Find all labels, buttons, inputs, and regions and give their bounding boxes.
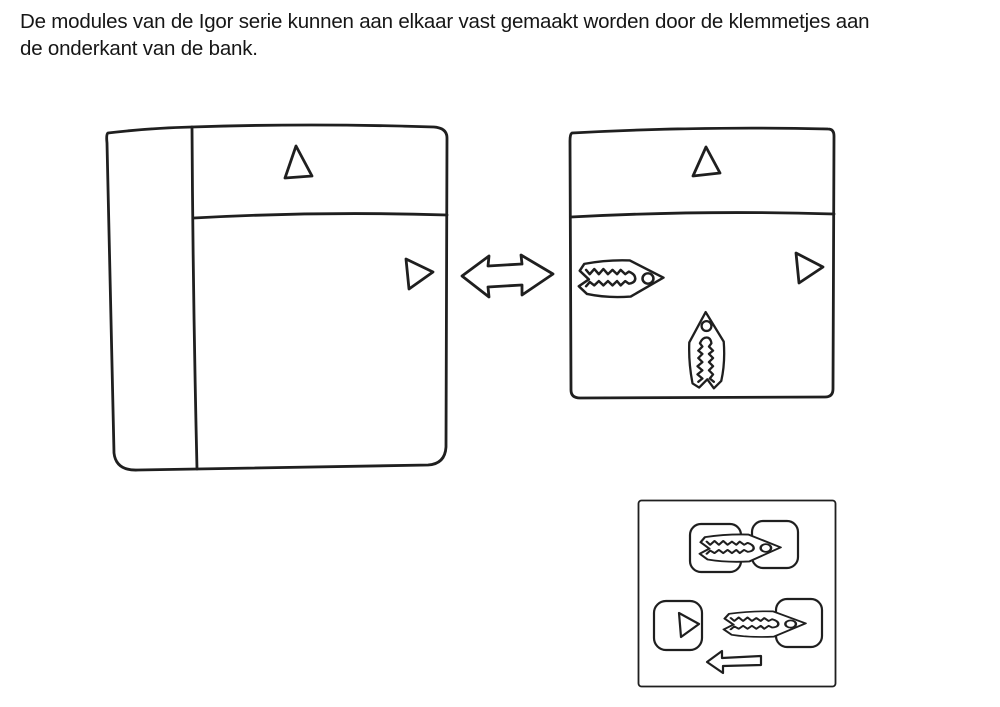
double-arrow-outline: [462, 255, 553, 297]
double-arrow-icon: [462, 255, 553, 297]
left-module-sketch: [107, 125, 447, 470]
backrest-divider-line: [194, 214, 447, 218]
up-triangle-icon: [693, 147, 720, 176]
page: De modules van de Igor serie kunnen aan …: [0, 0, 1000, 707]
diagram: [0, 0, 1000, 707]
clip-left-icon: [579, 260, 664, 297]
right-module-sketch: [570, 128, 834, 398]
armrest-divider-line: [192, 127, 197, 469]
module-block: [654, 601, 702, 650]
detail-inset-box: [639, 501, 836, 687]
right-triangle-icon: [796, 253, 823, 283]
backrest-divider-line: [571, 213, 834, 217]
module-outline: [107, 125, 447, 470]
right-triangle-icon: [406, 259, 433, 289]
left-arrow-icon: [707, 651, 761, 673]
up-triangle-icon: [285, 146, 312, 178]
clip-down-icon: [689, 312, 724, 388]
